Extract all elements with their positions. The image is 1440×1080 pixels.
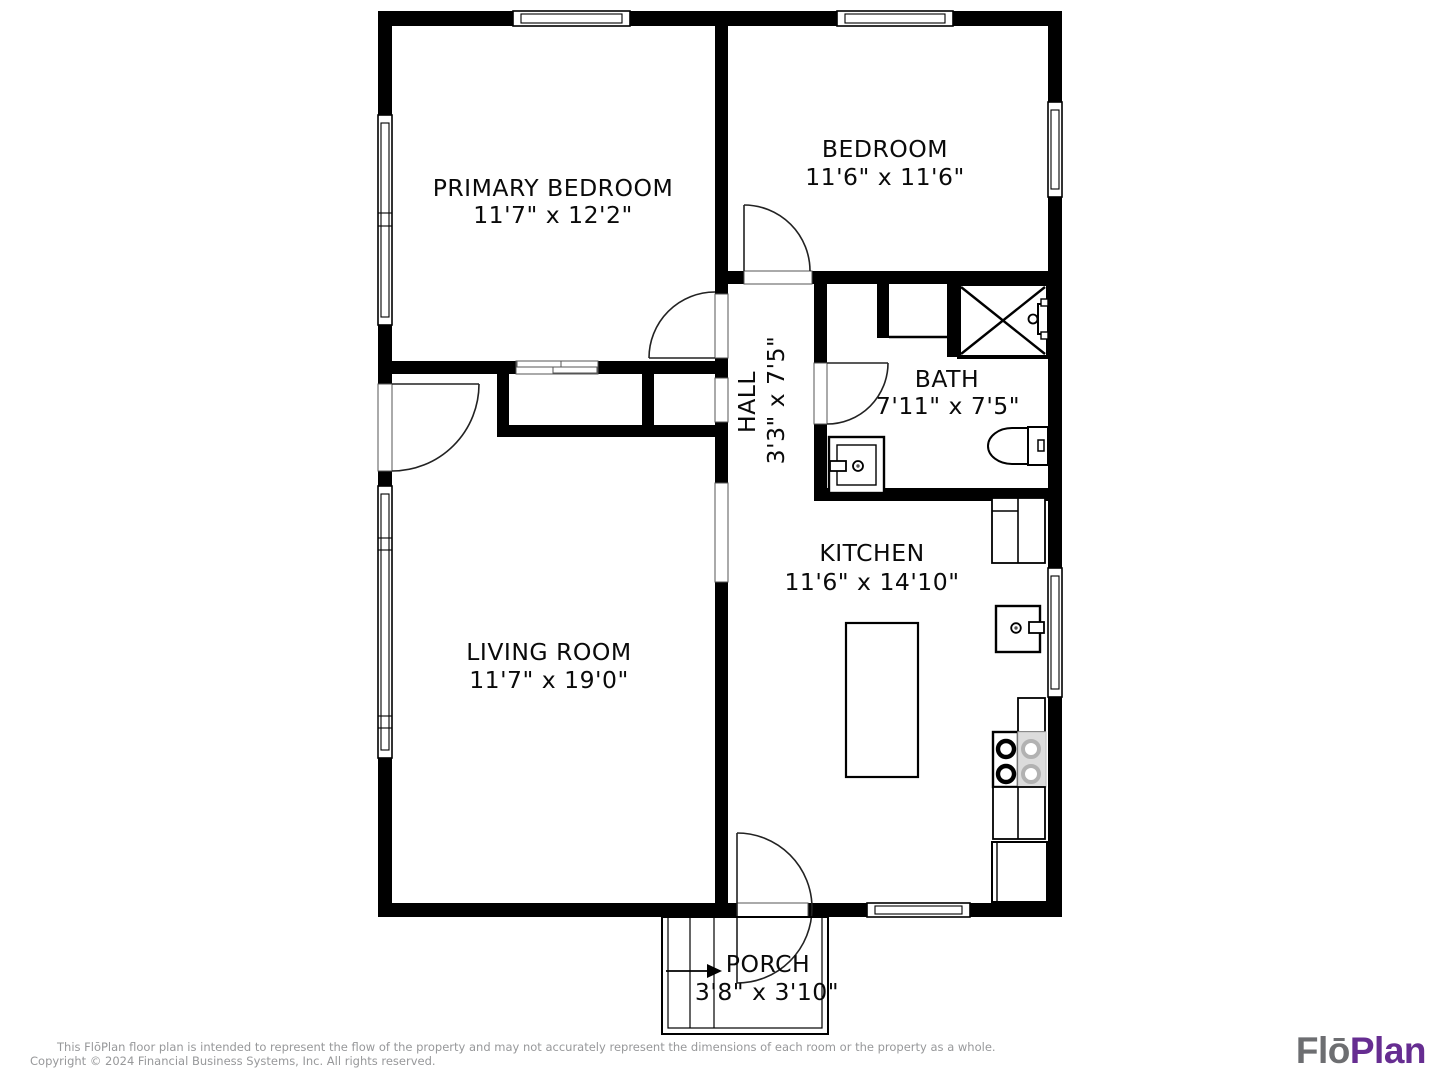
room-name: BEDROOM (822, 135, 948, 163)
room-name: LIVING ROOM (466, 638, 631, 666)
room-dims: 11'6" x 14'10" (784, 568, 959, 596)
room-dims: 7'11" x 7'5" (876, 392, 1020, 420)
living-room-entry-door (392, 384, 479, 471)
window-kitchen-bottom (867, 903, 970, 917)
room-label-bath: BATH 7'11" x 7'5" (876, 365, 1020, 420)
logo-text-plan: Plan (1350, 1030, 1426, 1071)
room-name: PRIMARY BEDROOM (433, 174, 674, 202)
window-kitchen-right (1048, 568, 1062, 697)
closet-slider-panel-1 (517, 361, 561, 367)
room-label-primary-bedroom: PRIMARY BEDROOM 11'7" x 12'2" (433, 174, 674, 229)
room-name: HALL (733, 371, 761, 433)
stove-icon (993, 732, 1046, 787)
wall-closet-mid-stub (642, 374, 654, 425)
room-dims: 3'8" x 3'10" (695, 978, 839, 1006)
floor-plan-drawing: PRIMARY BEDROOM 11'7" x 12'2" BEDROOM 11… (0, 0, 1440, 1080)
counter-mid (1018, 698, 1045, 732)
bath-vanity-sink-icon (829, 437, 884, 493)
living-kitchen-passage-opening (715, 483, 728, 582)
disclaimer-line-1: This FlōPlan floor plan is intended to r… (57, 1041, 1000, 1055)
disclaimer: This FlōPlan floor plan is intended to r… (0, 1041, 1000, 1068)
floplan-logo: FlōPlan (1296, 1030, 1426, 1072)
room-dims: 11'6" x 11'6" (805, 163, 965, 191)
room-name: PORCH (726, 950, 810, 978)
wall-bath-closet-left (877, 284, 889, 338)
hall-closet-opening (715, 378, 728, 422)
floor-plan-page: PRIMARY BEDROOM 11'7" x 12'2" BEDROOM 11… (0, 0, 1440, 1080)
room-label-hall: HALL 3'3" x 7'5" (733, 336, 790, 465)
bath-door-opening (814, 363, 827, 424)
window-bedroom-top (837, 11, 953, 26)
room-label-kitchen: KITCHEN 11'6" x 14'10" (784, 539, 959, 596)
wall-closet-left-stub (497, 374, 509, 425)
window-primary-bedroom-left (378, 115, 392, 325)
window-living-room-left (378, 486, 392, 758)
shower-icon (959, 284, 1048, 357)
disclaimer-line-2: Copyright © 2024 Financial Business Syst… (30, 1055, 1000, 1069)
window-bedroom-right (1048, 102, 1062, 197)
room-name: BATH (915, 365, 979, 393)
counter-upper (992, 498, 1045, 563)
walls (378, 11, 1062, 917)
wall-bedroom-divider (715, 11, 728, 278)
porch-door-opening (737, 903, 808, 917)
kitchen-island (846, 623, 918, 777)
refrigerator-icon (992, 842, 1047, 902)
room-label-porch: PORCH 3'8" x 3'10" (695, 950, 839, 1006)
living-room-entry-opening (378, 384, 392, 471)
counter-lower (993, 787, 1045, 839)
toilet-icon (988, 427, 1048, 465)
kitchen-sink-icon (996, 606, 1044, 652)
logo-text-flo: Flō (1296, 1030, 1350, 1071)
room-dims: 3'3" x 7'5" (762, 336, 790, 465)
room-name: KITCHEN (819, 539, 924, 567)
room-label-living-room: LIVING ROOM 11'7" x 19'0" (466, 638, 631, 694)
room-dims: 11'7" x 12'2" (473, 201, 633, 229)
window-primary-bedroom-top (513, 11, 630, 26)
primary-bedroom-door-opening (715, 294, 728, 358)
room-label-bedroom: BEDROOM 11'6" x 11'6" (805, 135, 965, 191)
closet-slider-panel-2 (553, 367, 597, 373)
primary-bedroom-door (649, 292, 715, 358)
wall-living-kitchen-divider (715, 284, 728, 903)
bedroom-door-opening (744, 271, 812, 284)
room-dims: 11'7" x 19'0" (469, 666, 629, 694)
bedroom-door (744, 205, 810, 271)
wall-closet-bottom (497, 425, 728, 437)
